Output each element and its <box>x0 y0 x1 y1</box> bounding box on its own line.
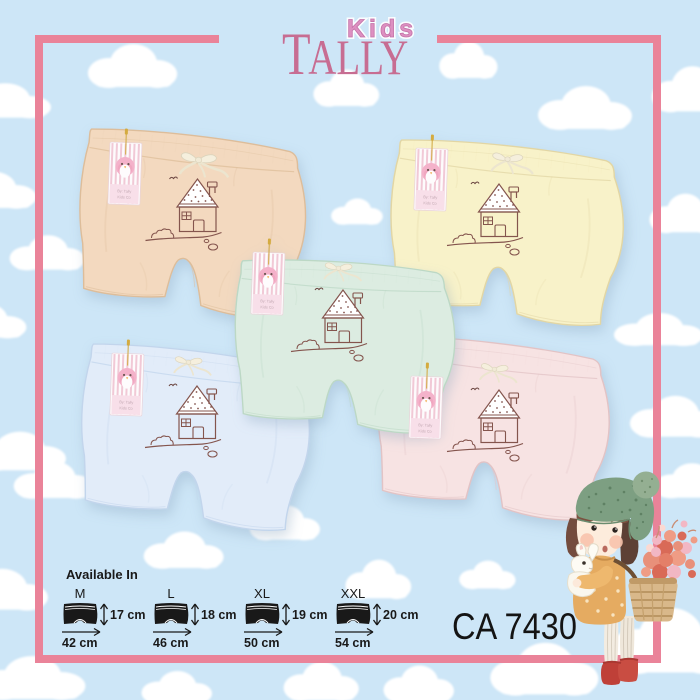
svg-text:20 cm: 20 cm <box>383 608 418 622</box>
svg-text:46 cm: 46 cm <box>153 636 188 650</box>
svg-text:CA 7430: CA 7430 <box>452 606 577 647</box>
svg-text:17 cm: 17 cm <box>110 608 145 622</box>
svg-text:54 cm: 54 cm <box>335 636 370 650</box>
svg-text:50 cm: 50 cm <box>244 636 279 650</box>
svg-text:19 cm: 19 cm <box>292 608 327 622</box>
svg-text:M: M <box>75 586 86 601</box>
svg-text:42 cm: 42 cm <box>62 636 97 650</box>
svg-text:18 cm: 18 cm <box>201 608 236 622</box>
svg-text:Available In: Available In <box>66 567 138 582</box>
svg-text:XL: XL <box>254 586 270 601</box>
svg-text:L: L <box>167 586 174 601</box>
svg-text:TALLY: TALLY <box>282 20 408 87</box>
svg-text:XXL: XXL <box>341 586 366 601</box>
